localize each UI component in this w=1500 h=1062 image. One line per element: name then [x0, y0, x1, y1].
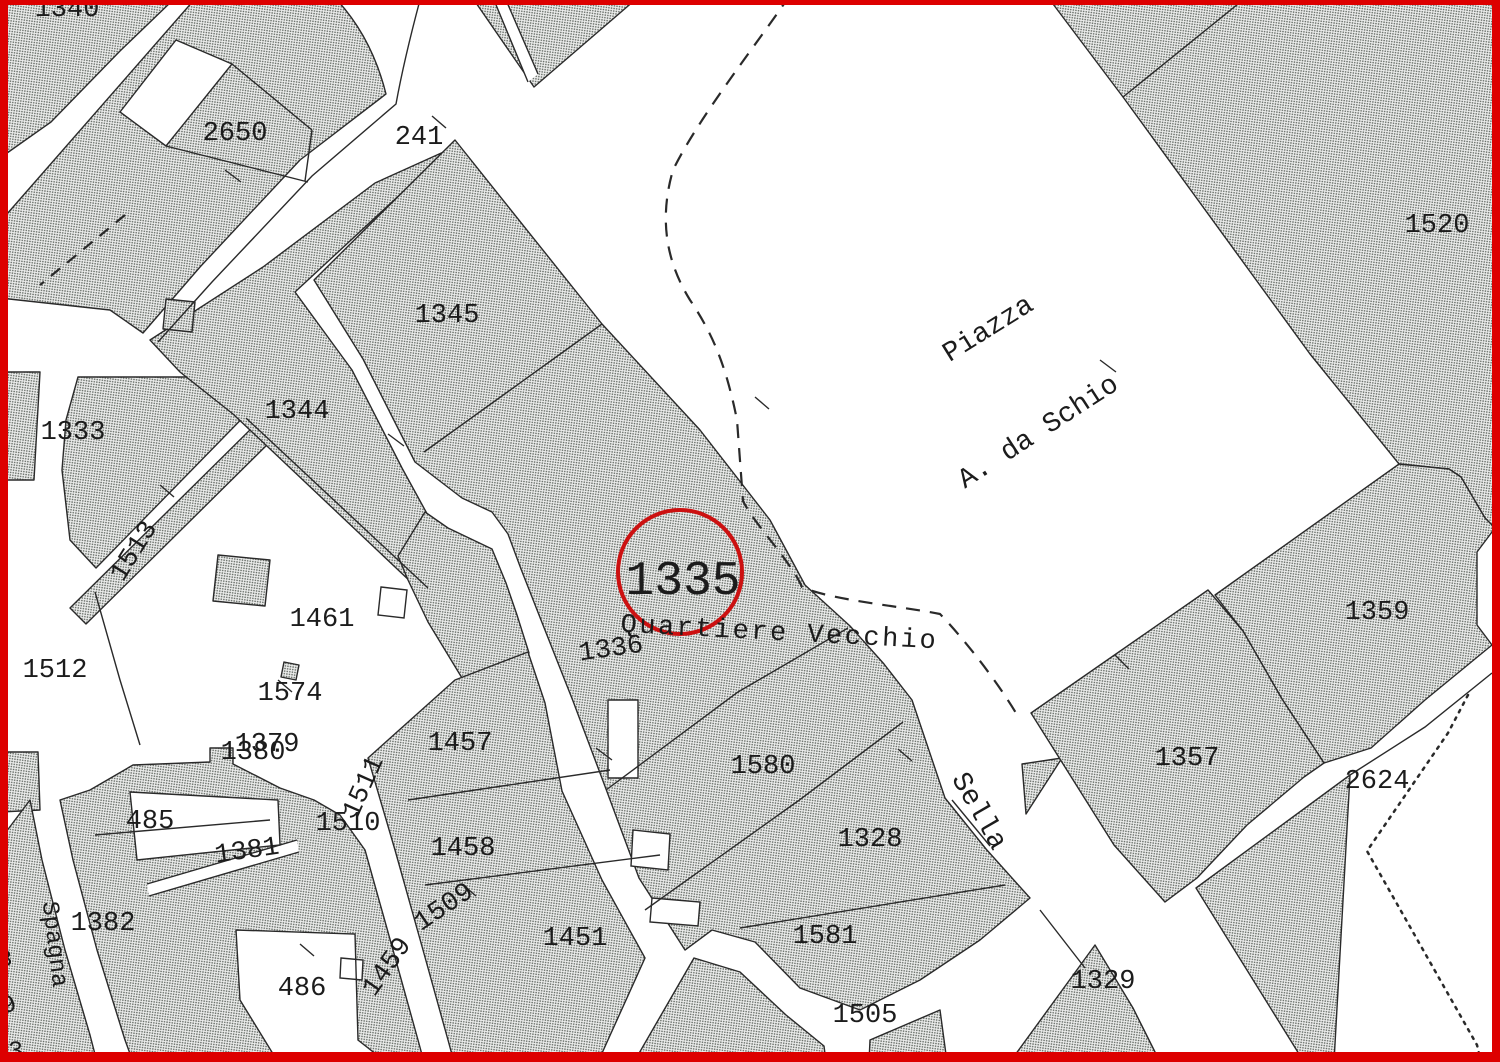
svg-text:1328: 1328 [838, 825, 903, 855]
svg-text:1505: 1505 [833, 1001, 898, 1031]
svg-text:1512: 1512 [23, 656, 88, 686]
svg-text:1451: 1451 [543, 924, 608, 954]
svg-text:1357: 1357 [1155, 744, 1220, 774]
svg-text:1335: 1335 [625, 555, 740, 609]
svg-text:1580: 1580 [731, 752, 796, 782]
svg-text:1344: 1344 [265, 397, 330, 427]
svg-text:1329: 1329 [1071, 967, 1136, 997]
svg-text:1345: 1345 [415, 301, 480, 331]
svg-text:2624: 2624 [1345, 767, 1410, 797]
svg-text:1457: 1457 [428, 729, 493, 759]
svg-text:241: 241 [395, 123, 444, 153]
svg-text:1359: 1359 [1345, 598, 1410, 628]
svg-text:1520: 1520 [1405, 211, 1470, 241]
svg-text:1458: 1458 [431, 834, 496, 864]
svg-text:485: 485 [126, 807, 175, 837]
svg-text:1461: 1461 [290, 605, 355, 635]
svg-text:1581: 1581 [793, 922, 858, 952]
svg-text:1574: 1574 [258, 679, 323, 709]
svg-text:486: 486 [278, 974, 327, 1004]
svg-text:1380: 1380 [221, 738, 286, 768]
svg-text:2650: 2650 [203, 119, 268, 149]
svg-text:1333: 1333 [41, 418, 106, 448]
svg-text:1382: 1382 [71, 909, 136, 939]
